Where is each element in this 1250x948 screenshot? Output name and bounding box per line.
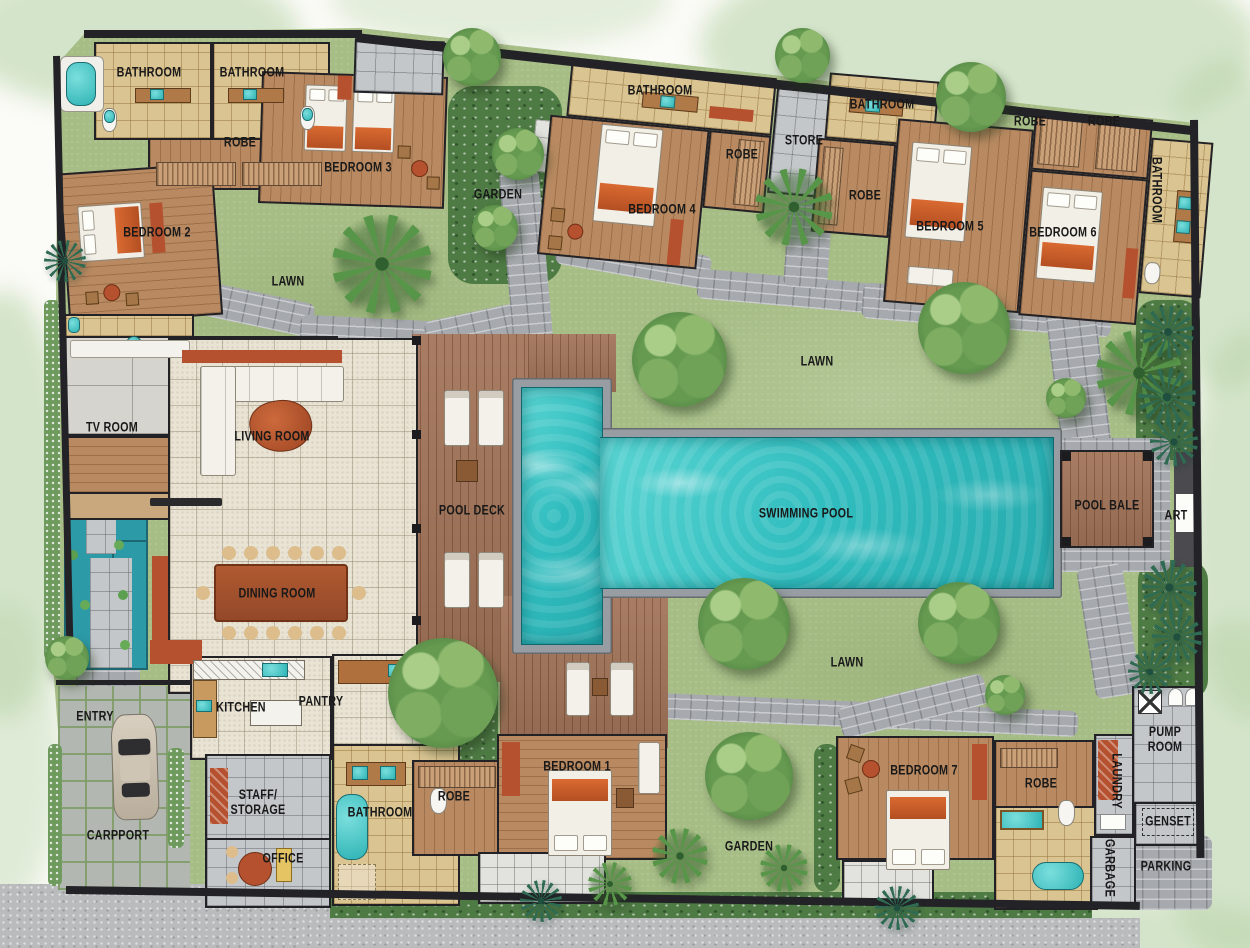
- column: [412, 616, 421, 625]
- office-chair: [226, 872, 238, 884]
- tv-room-entry: [64, 314, 194, 338]
- spiky-plant: [1142, 560, 1197, 615]
- table: [862, 760, 880, 778]
- wardrobe: [1095, 121, 1141, 172]
- tree: [45, 636, 89, 680]
- tree: [985, 675, 1025, 715]
- label-art: ART: [1165, 507, 1188, 522]
- bale-post: [1143, 452, 1152, 461]
- outdoor-bathtub: [66, 62, 96, 106]
- bathtub: [1032, 862, 1084, 890]
- dining-chair: [352, 586, 366, 600]
- planter-wall: [152, 556, 168, 642]
- sun-lounger: [478, 390, 504, 446]
- chair: [85, 291, 99, 305]
- label-genset: GENSET: [1145, 813, 1191, 828]
- label-robe-bed1: ROBE: [438, 788, 470, 803]
- label-bedroom-1: BEDROOM 1: [543, 758, 611, 773]
- label-lawn-east: LAWN: [831, 654, 864, 669]
- car-roof: [120, 756, 151, 781]
- bed-pillow: [83, 234, 96, 255]
- hedge-left-edge: [44, 300, 60, 660]
- spiky-plant: [520, 880, 562, 922]
- spiky-plant: [44, 240, 86, 282]
- label-entry: ENTRY: [76, 708, 113, 723]
- console-bench: [182, 350, 342, 363]
- room-bedroom-2: [59, 163, 223, 325]
- villa-floor-plan: BATHROOM BATHROOM ROBE BEDROOM 3 BEDROOM…: [0, 0, 1250, 948]
- label-pool-bale: POOL BALE: [1075, 497, 1140, 512]
- bed-pillow: [82, 210, 95, 231]
- bed-pillow: [583, 835, 607, 851]
- label-garbage: GARBAGE: [1102, 839, 1117, 897]
- spiky-plant: [1142, 306, 1194, 358]
- label-robe-bed6-right: ROBE: [1088, 113, 1120, 128]
- bed-blanket: [552, 779, 608, 801]
- column: [412, 524, 421, 533]
- label-parking: PARKING: [1141, 858, 1192, 873]
- tree: [936, 62, 1006, 132]
- tree: [388, 638, 498, 748]
- pond-stepping-stones: [90, 558, 132, 668]
- label-bathroom-bed3: BATHROOM: [220, 64, 285, 79]
- tree: [472, 205, 518, 251]
- bedroom1-cabinet: [502, 742, 520, 796]
- boundary-wall-north-west: [84, 30, 362, 38]
- label-bathroom-bed6: BATHROOM: [1149, 157, 1164, 223]
- pump-equipment: [1168, 688, 1183, 706]
- label-bathroom-bed5: BATHROOM: [850, 96, 915, 111]
- bed: [886, 790, 950, 870]
- label-bedroom-7: BEDROOM 7: [890, 762, 958, 777]
- daybed-pillows: [70, 340, 190, 358]
- basin: [150, 89, 164, 100]
- label-store: STORE: [785, 132, 823, 147]
- tree: [632, 312, 727, 407]
- sun-lounger: [610, 662, 634, 716]
- office-chair: [226, 846, 238, 858]
- label-garden-top: GARDEN: [474, 186, 522, 201]
- bed-blanket: [1041, 242, 1095, 270]
- label-bedroom-3: BEDROOM 3: [324, 159, 392, 174]
- bale-post: [1143, 537, 1152, 546]
- kitchen-counter: [193, 660, 305, 680]
- bed-pillow: [916, 147, 940, 163]
- label-pantry: PANTRY: [299, 693, 344, 708]
- tree: [492, 128, 544, 180]
- label-robe-bed5: ROBE: [849, 187, 881, 202]
- bed-pillow: [943, 149, 967, 165]
- chair: [125, 292, 139, 306]
- bed-pillow: [633, 132, 658, 148]
- label-bedroom-6: BEDROOM 6: [1029, 224, 1097, 239]
- bench: [638, 742, 660, 794]
- sofa-l-vertical: [200, 366, 236, 476]
- dining-chair: [196, 586, 210, 600]
- tree: [705, 732, 793, 820]
- bed-pillow: [554, 835, 578, 851]
- label-robe-bed23: ROBE: [224, 134, 256, 149]
- spiky-plant: [875, 886, 919, 930]
- bed-blanket: [307, 126, 344, 149]
- carport-hedge-right: [168, 748, 184, 848]
- deck-side-table: [456, 460, 478, 482]
- bed-pillow: [605, 129, 630, 145]
- label-robe-bed4: ROBE: [726, 146, 758, 161]
- bed-pillow: [1047, 192, 1071, 208]
- dining-chairs-row: [222, 626, 236, 640]
- label-pump-room: PUMP ROOM: [1148, 724, 1183, 754]
- car: [110, 713, 160, 821]
- label-laundry: LAUNDRY: [1109, 753, 1124, 808]
- tree: [443, 28, 501, 86]
- label-bathroom-bed2: BATHROOM: [117, 64, 182, 79]
- column: [412, 336, 421, 345]
- palm-tree: [332, 214, 432, 314]
- label-tv-room: TV ROOM: [86, 419, 138, 434]
- bed-pillow: [921, 849, 945, 865]
- tree: [698, 578, 790, 670]
- label-staff-storage: STAFF/ STORAGE: [231, 787, 286, 817]
- label-lawn-center: LAWN: [801, 353, 834, 368]
- carport-hedge-left: [48, 744, 62, 886]
- label-robe-bed6-left: ROBE: [1014, 113, 1046, 128]
- bale-post: [1062, 452, 1071, 461]
- wardrobe: [418, 766, 496, 788]
- palm-tree: [588, 862, 632, 906]
- bed-blanket: [355, 127, 392, 150]
- chair: [397, 145, 410, 158]
- laundry-door: [1100, 814, 1126, 830]
- column: [412, 430, 421, 439]
- sun-lounger: [444, 390, 470, 446]
- tree: [1046, 378, 1086, 418]
- bed-pillow: [309, 89, 325, 101]
- storage-cabinet: [210, 768, 228, 824]
- car-windshield: [118, 738, 151, 755]
- basin: [352, 766, 368, 780]
- chair: [426, 176, 439, 189]
- toilet-seat: [302, 108, 313, 121]
- bed-pillow: [1073, 194, 1097, 210]
- sun-lounger: [444, 552, 470, 608]
- carport-wall: [56, 680, 192, 685]
- pool-water-wide: [521, 387, 603, 645]
- tree: [918, 582, 1000, 664]
- label-bedroom-4: BEDROOM 4: [628, 201, 696, 216]
- bedside-bench: [337, 75, 352, 99]
- label-dining-room: DINING ROOM: [238, 585, 315, 600]
- dining-chairs-row: [222, 546, 236, 560]
- bed-blanket: [890, 797, 946, 819]
- sink: [196, 700, 212, 712]
- label-robe-bed7: ROBE: [1025, 775, 1057, 790]
- chair: [550, 207, 565, 222]
- car-rear-window: [122, 783, 150, 798]
- tree: [775, 28, 830, 83]
- bed: [548, 770, 612, 856]
- small-tub: [68, 317, 80, 333]
- spiky-plant: [1150, 418, 1198, 466]
- sun-lounger: [478, 552, 504, 608]
- spiky-plant: [1138, 368, 1196, 426]
- palm-tree: [755, 168, 833, 246]
- tree: [918, 282, 1010, 374]
- label-bathroom-bed4: BATHROOM: [628, 82, 693, 97]
- label-pool-deck: POOL DECK: [439, 502, 505, 517]
- wardrobe: [1000, 748, 1058, 768]
- label-bedroom-2: BEDROOM 2: [123, 224, 191, 239]
- label-kitchen: KITCHEN: [216, 699, 266, 714]
- bench: [972, 744, 987, 800]
- chair: [548, 235, 563, 250]
- basin: [243, 89, 257, 100]
- bed: [352, 86, 396, 153]
- basin: [1176, 220, 1191, 234]
- basin: [380, 766, 396, 780]
- toilet-seat: [104, 110, 115, 123]
- sun-lounger: [566, 662, 590, 716]
- label-lawn-top-left: LAWN: [272, 273, 305, 288]
- label-bathroom-bed1: BATHROOM: [348, 804, 413, 819]
- label-garden-south: GARDEN: [725, 838, 773, 853]
- label-swimming-pool: SWIMMING POOL: [759, 505, 853, 520]
- palm-tree: [652, 828, 708, 884]
- bed-pillow: [892, 849, 916, 865]
- label-living-room: LIVING ROOM: [234, 428, 309, 443]
- deck-side-table: [592, 678, 608, 696]
- spiky-plant: [1128, 650, 1172, 694]
- cooktop: [262, 663, 288, 677]
- vanity-bench: [1000, 810, 1044, 830]
- label-office: OFFICE: [262, 850, 303, 865]
- driveway-strip: [300, 918, 1140, 948]
- label-carpport: CARPPORT: [87, 827, 150, 842]
- label-bedroom-5: BEDROOM 5: [916, 218, 984, 233]
- wardrobe: [156, 162, 236, 186]
- toilet: [1058, 800, 1075, 826]
- wardrobe: [242, 162, 322, 186]
- tv-console: [150, 498, 222, 506]
- bale-post: [1062, 537, 1071, 546]
- side-table: [616, 788, 634, 808]
